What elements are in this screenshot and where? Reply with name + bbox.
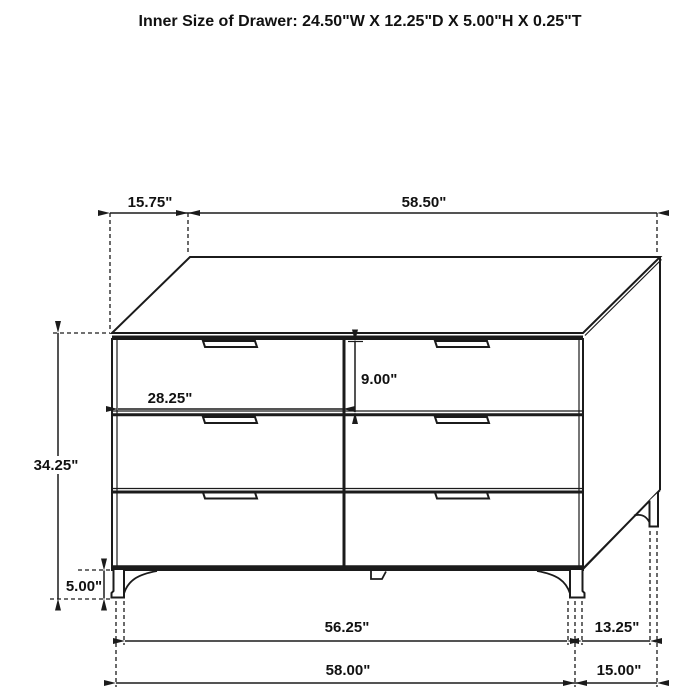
drawer-handle-top-left [203, 341, 257, 347]
top-surface [112, 257, 660, 333]
back-right-leg [650, 493, 659, 527]
drawer-handle-bottom-right [435, 493, 489, 499]
dim-top-width: 58.50" [188, 194, 657, 213]
diagram-page: Inner Size of Drawer: 24.50"W X 12.25"D … [0, 0, 700, 700]
front-right-leg [570, 570, 585, 598]
dim-top-depth-offset: 15.75" [110, 194, 188, 213]
dim-label: 15.00" [597, 662, 642, 679]
dim-side-depth-span: 15.00" [575, 662, 657, 683]
dim-label: 28.25" [148, 390, 193, 407]
dim-leg-height: 5.00" [66, 571, 104, 599]
center-glide [371, 571, 386, 579]
dim-front-leg-span: 56.25" [125, 619, 567, 641]
dim-label: 58.00" [326, 662, 371, 679]
dim-label: 13.25" [595, 619, 640, 636]
drawer-handle-mid-right [435, 417, 489, 423]
dresser-dimension-diagram: Inner Size of Drawer: 24.50"W X 12.25"D … [0, 0, 700, 700]
front-face [112, 339, 583, 570]
page-title: Inner Size of Drawer: 24.50"W X 12.25"D … [139, 13, 582, 30]
back-right-leg-bracket [634, 515, 650, 523]
front-panel [112, 339, 583, 570]
front-left-leg [112, 570, 125, 598]
drawer-handle-bottom-left [203, 493, 257, 499]
front-left-leg-bracket [124, 571, 157, 594]
dim-label: 9.00" [361, 371, 397, 388]
drawer-handle-top-right [435, 341, 489, 347]
dim-side-leg-gap: 13.25" [582, 619, 650, 641]
dim-base-width: 58.00" [116, 662, 575, 683]
dresser-drawing [112, 257, 662, 598]
dresser-top [112, 257, 662, 337]
dim-label: 56.25" [325, 619, 370, 636]
dim-label: 34.25" [34, 457, 79, 474]
dim-label: 15.75" [128, 194, 173, 211]
drawer-handle-mid-left [203, 417, 257, 423]
side-bottom-edge-thickness [581, 493, 658, 571]
front-right-leg-bracket [537, 571, 570, 594]
dim-label: 58.50" [402, 194, 447, 211]
dim-label: 5.00" [66, 578, 102, 595]
dim-cabinet-height: 34.25" [33, 333, 81, 599]
